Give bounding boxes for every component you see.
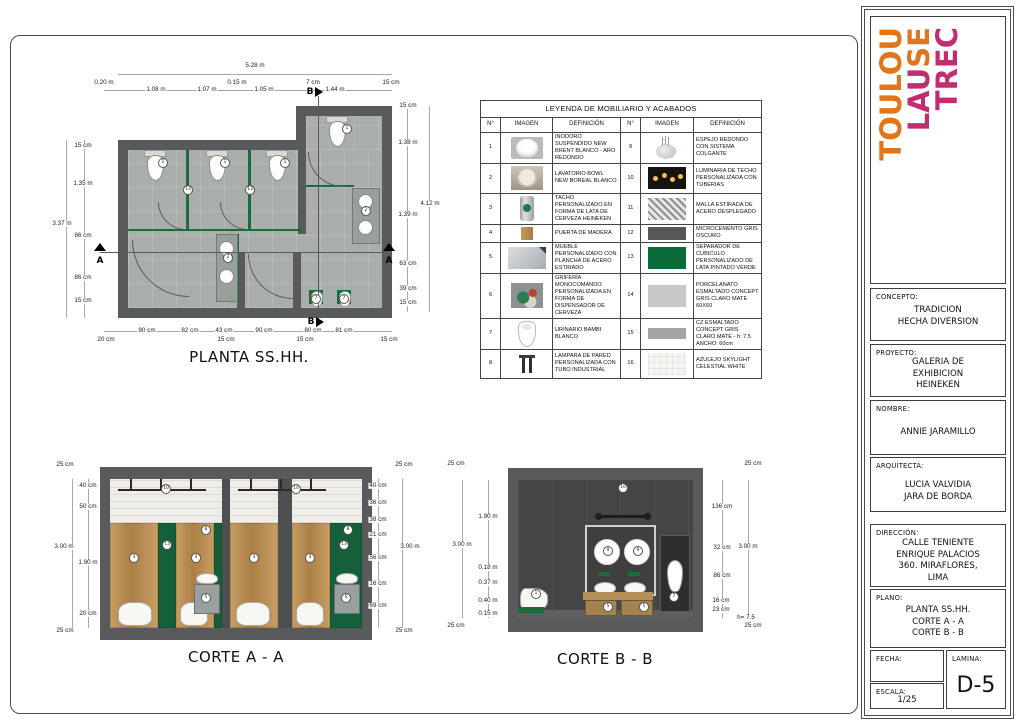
dim-label: 0.15 m (477, 611, 498, 617)
legend-def: LAVATORIO BOWL NEW BOREAL BLANCO (553, 163, 621, 193)
legend-def: INODORO SUSPENDIDO NEW BRENT BLANCO - AR… (553, 133, 621, 164)
concepto-box: CONCEPTO: TRADICION HECHA DIVERSION (870, 288, 1006, 341)
dim-label: 80 cm (303, 328, 322, 334)
concepto-label: CONCEPTO: (876, 293, 918, 301)
legend-image-cell (501, 242, 553, 273)
section-marker-b-icon (316, 317, 324, 327)
callout-lamp: 8 (343, 525, 353, 535)
legend-row: 1 INODORO SUSPENDIDO NEW BRENT BLANCO - … (481, 133, 762, 164)
dim-label: 25 cm (743, 461, 762, 467)
dim-label: 25 cm (743, 623, 762, 629)
plano-box: PLANO: PLANTA SS.HH. CORTE A - A CORTE B… (870, 589, 1006, 648)
dim-label: 90 cm (254, 328, 273, 334)
legend-num: 14 (621, 273, 641, 318)
legend-def: LAMPARA DE PARED PERSONALIZADA CON TUBO … (553, 349, 621, 378)
dividing-wall (278, 479, 292, 628)
dim-label: 15 cm (398, 103, 417, 109)
pipe-light-photo (648, 167, 686, 189)
legend-image-cell (501, 273, 553, 318)
wall-segment (118, 140, 302, 150)
callout-separator: 13 (245, 185, 255, 195)
ceiling-pipe (190, 479, 192, 491)
dim-line (402, 479, 403, 628)
legend-image-cell (501, 224, 553, 242)
callout-mirror: 9 (633, 546, 643, 556)
section-marker-a: A (386, 256, 393, 266)
sink-front (196, 573, 218, 584)
green-partition (158, 523, 176, 628)
dim-label: 3.37 m (51, 221, 72, 227)
dim-label: 56 cm (368, 555, 387, 561)
plano-label: PLANO: (876, 594, 903, 602)
lamina-box: LAMINA: D-5 (946, 650, 1006, 709)
legend-def: URINARIO BAMBI BLANCO (553, 318, 621, 349)
legend-header: N° (621, 118, 641, 133)
direccion-label: DIRECCIÓN: (876, 529, 918, 537)
arquitecta-label: ARQUITECTA: (876, 462, 924, 470)
callout-door: 4 (191, 553, 201, 563)
dim-label: 4.12 m (419, 201, 440, 207)
callout-urinal: 7 (669, 592, 679, 602)
ceiling-pipe (130, 479, 132, 491)
callout-door: 4 (129, 553, 139, 563)
gray-tile-swatch (648, 328, 686, 339)
legend-image-cell (501, 163, 553, 193)
callout-separator: 13 (339, 540, 349, 550)
round-mirror-photo (655, 135, 679, 160)
concepto-value: TRADICION HECHA DIVERSION (871, 305, 1005, 328)
dim-label: 25 cm (394, 628, 413, 634)
dim-label: 25 cm (446, 461, 465, 467)
legend-row: 2 LAVATORIO BOWL NEW BOREAL BLANCO 10 LU… (481, 163, 762, 193)
callout-toilet: 1 (220, 158, 230, 168)
nombre-value: ANNIE JARAMILLO (871, 427, 1005, 439)
dim-line (407, 106, 408, 312)
dim-label: 39 cm (398, 286, 417, 292)
sink-bowl (358, 220, 373, 235)
legend-row: 5 MUEBLE PERSONALIZADO CON PLANCHA DE AC… (481, 242, 762, 273)
proyecto-value: GALERIA DE EXHIBICION HEINEKEN (871, 357, 1005, 392)
legend-row: 4 PUERTA DE MADERA 12 MICROCEMENTO GRIS … (481, 224, 762, 242)
dim-label: 21 cm (368, 532, 387, 538)
ceiling-pipe (310, 479, 312, 491)
dim-label: 82 cm (180, 328, 199, 334)
legend-num: 13 (621, 242, 641, 273)
legend-def: MUEBLE PERSONALIZADO CON PLANCHA DE ACER… (553, 242, 621, 273)
dim-label: 1.90 m (477, 514, 498, 520)
direccion-value: CALLE TENIENTE ENRIQUE PALACIOS 360. MIR… (871, 538, 1005, 584)
dim-line (84, 140, 85, 318)
dim-label: 5.28 m (244, 63, 265, 69)
legend-table: LEYENDA DE MOBILIARIO Y ACABADOS N° IMAG… (480, 100, 762, 379)
dim-label: 86 cm (73, 233, 92, 239)
dim-line (72, 479, 73, 628)
legend-def: SEPARADOR DE CUBICULO PERSONALIZADO DE L… (694, 242, 762, 273)
callout-cabinet: 5 (201, 593, 211, 603)
section-marker-a: A (97, 256, 104, 266)
dim-label: 136 cm (711, 504, 734, 510)
legend-image-cell (641, 224, 694, 242)
legend-header: IMAGEN (501, 118, 553, 133)
legend-num: 2 (481, 163, 501, 193)
escala-value: 1/25 (871, 695, 943, 707)
lamp-bulb (644, 513, 651, 520)
wall-segment (296, 106, 392, 116)
legend-title: LEYENDA DE MOBILIARIO Y ACABADOS (481, 101, 762, 118)
legend-row: 6 GRIFERÍA MONOCOMANDO PERSONALIZADA EN … (481, 273, 762, 318)
white-tile-swatch (648, 353, 686, 375)
logo-word-trec: TREC (933, 27, 963, 110)
wall-segment (293, 253, 301, 308)
fecha-label: FECHA: (876, 655, 902, 663)
callout-cabinet: 5 (603, 602, 613, 612)
dim-line (66, 140, 67, 318)
escala-box: ESCALA: 1/25 (870, 683, 944, 709)
urinal-front (667, 560, 683, 592)
legend-def: MICROCEMENTO GRIS OSCURO (694, 224, 762, 242)
green-base (518, 607, 544, 613)
legend-num: 8 (481, 349, 501, 378)
steel-mesh-swatch (648, 198, 686, 220)
callout-sink: 2 (223, 253, 233, 263)
legend-image-cell (641, 193, 694, 224)
dim-label: 69 cm (368, 603, 387, 609)
dim-label: 40 cm (368, 483, 387, 489)
callout-urinal: 7 (339, 294, 349, 304)
section-marker-b: B (307, 87, 314, 97)
callout-door: 4 (305, 553, 315, 563)
dim-label: 1.39 m (397, 212, 418, 218)
dim-label: 15 cm (398, 300, 417, 306)
dim-label: h= 7.5 (736, 615, 756, 621)
callout-ceiling-light: 10 (618, 483, 628, 493)
nombre-label: NOMBRE: (876, 405, 910, 413)
callout-toilet: 1 (531, 589, 541, 599)
legend-num: 11 (621, 193, 641, 224)
dim-label: 0.15 m (226, 80, 247, 86)
dim-label: 38 cm (368, 517, 387, 523)
dim-label: 36 cm (368, 500, 387, 506)
drawing-sheet: TOULOU LAUSE TREC CONCEPTO: TRADICION HE… (0, 0, 1024, 723)
legend-header: IMAGEN (641, 118, 694, 133)
wood-counter (583, 592, 653, 600)
dim-label: 15 cm (216, 337, 235, 343)
dim-label: 15 cm (73, 298, 92, 304)
dim-label: 1.44 m (324, 87, 345, 93)
callout-separator: 13 (183, 185, 193, 195)
dim-label: 23 cm (711, 607, 730, 613)
legend-def: ESPEJO REDONDO CON SISTEMA COLGANTE (694, 133, 762, 164)
plano-value: PLANTA SS.HH. CORTE A - A CORTE B - B (871, 605, 1005, 640)
stall-front-wall (128, 229, 302, 231)
section-marker-a-icon (94, 243, 106, 251)
dim-label: 15 cm (73, 143, 92, 149)
legend-header: N° (481, 118, 501, 133)
dim-label: 3.00 m (53, 544, 74, 550)
lamina-value: D-5 (947, 671, 1005, 701)
legend-def: MALLA ESTIRADA DE ACERO DESPLEGADO (694, 193, 762, 224)
dim-label: 86 cm (73, 275, 92, 281)
dim-label: 20 cm (96, 337, 115, 343)
callout-ceiling-light: 10 (291, 484, 301, 494)
microcement-swatch (648, 227, 686, 240)
dim-label: 16 cm (368, 581, 387, 587)
bowl-sink-photo (511, 166, 543, 190)
legend-header: DEFINICIÓN (694, 118, 762, 133)
legend-num: 1 (481, 133, 501, 164)
legend-num: 10 (621, 163, 641, 193)
legend-image-cell (641, 349, 694, 378)
sink-bowl (219, 269, 234, 284)
beer-tap-photo (511, 283, 543, 308)
proyecto-label: PROYECTO: (876, 349, 916, 357)
dim-label: 3.00 m (399, 544, 420, 550)
legend-def: TACHO PERSONALIZADO EN FORMA DE LATA DE … (553, 193, 621, 224)
dim-label: 81 cm (334, 328, 353, 334)
dim-label: 15 cm (381, 80, 400, 86)
callout-door: 4 (249, 553, 259, 563)
toilet-front (296, 602, 324, 626)
legend-image-cell (641, 133, 694, 164)
logo-box: TOULOU LAUSE TREC (870, 16, 1006, 284)
dim-label: 86 cm (712, 573, 731, 579)
dim-label: 3.00 m (737, 544, 758, 550)
callout-cabinet: 5 (341, 593, 351, 603)
wall-segment (118, 308, 392, 318)
callout-mirror: 9 (603, 546, 613, 556)
legend-num: 6 (481, 273, 501, 318)
porcelain-swatch (648, 285, 686, 307)
dim-label: 90 cm (137, 328, 156, 334)
dim-label: 40 cm (78, 483, 97, 489)
dim-label: 1.38 m (397, 140, 418, 146)
dim-label: 32 cm (712, 545, 731, 551)
legend-num: 16 (621, 349, 641, 378)
legend-def: AZULEJO SKYLIGHT CELESTIAL WHITE (694, 349, 762, 378)
callout-urinal: 7 (311, 294, 321, 304)
section-line-a (100, 252, 390, 253)
legend-row: 8 LAMPARA DE PARED PERSONALIZADA CON TUB… (481, 349, 762, 378)
dim-label: 25 cm (55, 462, 74, 468)
legend-image-cell (501, 318, 553, 349)
dim-label: 25 cm (446, 623, 465, 629)
green-accent (628, 572, 640, 576)
dim-line (118, 74, 392, 75)
nombre-box: NOMBRE: ANNIE JARAMILLO (870, 400, 1006, 455)
callout-lamp: 8 (201, 525, 211, 535)
legend-num: 12 (621, 224, 641, 242)
legend-num: 4 (481, 224, 501, 242)
dim-line (462, 480, 463, 618)
section-marker-b-icon (315, 87, 323, 97)
ceiling-pipe (280, 479, 282, 491)
wall-segment (298, 146, 306, 234)
dim-label: 15 cm (379, 337, 398, 343)
dim-label: 63 cm (398, 261, 417, 267)
toilet-front (236, 602, 270, 626)
dim-label: 0.37 m (477, 580, 498, 586)
green-partition (306, 185, 354, 187)
lamina-label: LAMINA: (952, 655, 982, 663)
legend-def: LUMINARIA DE TECHO PERSONALIZADA CON TUB… (694, 163, 762, 193)
legend-def: PORCELANATO ESMALTADO CONCEPT GRIS CLARO… (694, 273, 762, 318)
wall-lamp-photo (517, 352, 537, 376)
callout-toilet: 1 (158, 158, 168, 168)
legend-num: 3 (481, 193, 501, 224)
dim-line (88, 479, 89, 628)
legend-image-cell (641, 242, 694, 273)
fecha-box: FECHA: (870, 650, 944, 682)
section-marker-a-icon (383, 243, 395, 251)
callout-ceiling-light: 10 (161, 484, 171, 494)
dividing-wall (222, 479, 230, 628)
beer-can-trash-photo (520, 196, 534, 221)
toilet-photo (511, 137, 543, 159)
legend-row: 3 TACHO PERSONALIZADO EN FORMA DE LATA D… (481, 193, 762, 224)
lamp-bulb (595, 513, 602, 520)
urinal-photo (518, 321, 536, 347)
dim-label: 20 cm (78, 611, 97, 617)
legend-num: 9 (621, 133, 641, 164)
plan-title: PLANTA SS.HH. (189, 348, 309, 366)
section-marker-b: B (308, 317, 315, 327)
section-a-title: CORTE A - A (188, 648, 284, 666)
legend-num: 15 (621, 318, 641, 349)
dim-label: 50 cm (78, 504, 97, 510)
dim-line (429, 106, 430, 312)
section-b-title: CORTE B - B (557, 650, 653, 668)
dim-label: 1.35 m (72, 181, 93, 187)
dim-label: 16 cm (711, 598, 730, 604)
legend-num: 5 (481, 242, 501, 273)
callout-separator: 13 (162, 540, 172, 550)
proyecto-box: PROYECTO: GALERIA DE EXHIBICION HEINEKEN (870, 344, 1006, 397)
dim-label: 15 cm (295, 337, 314, 343)
dim-label: 3.00 m (451, 542, 472, 548)
callout-sink: 2 (361, 206, 371, 216)
ceiling-pipe (250, 479, 252, 491)
legend-def: CZ ESMALTADO CONCEPT GRIS CLARO MATE - h… (694, 318, 762, 349)
callout-cabinet: 5 (639, 602, 649, 612)
dim-label: 0.20 m (93, 80, 114, 86)
dim-label: 1.90 m (77, 560, 98, 566)
legend-image-cell (641, 273, 694, 318)
wall-segment (118, 140, 128, 318)
legend-image-cell (501, 133, 553, 164)
legend-def: PUERTA DE MADERA (553, 224, 621, 242)
steel-cabinet-photo (508, 247, 546, 269)
dim-label: 1.08 m (145, 87, 166, 93)
wood-door-photo (521, 227, 533, 240)
dim-label: 1.05 m (253, 87, 274, 93)
dim-label: 7 cm (305, 80, 321, 86)
sink-front (336, 573, 358, 584)
dim-label: 25 cm (55, 628, 74, 634)
pipe-lamp (598, 515, 648, 518)
legend-image-cell (501, 349, 553, 378)
arquitecta-value: LUCIA VALVIDIA JARA DE BORDA (871, 480, 1005, 503)
legend-header: DEFINICIÓN (553, 118, 621, 133)
legend-def: GRIFERÍA MONOCOMANDO PERSONALIZADA EN FO… (553, 273, 621, 318)
wall-segment (296, 106, 306, 146)
arquitecta-box: ARQUITECTA: LUCIA VALVIDIA JARA DE BORDA (870, 457, 1006, 512)
legend-num: 7 (481, 318, 501, 349)
toilet-front (118, 602, 152, 626)
dim-label: 25 cm (394, 462, 413, 468)
callout-toilet: 1 (280, 158, 290, 168)
legend-image-cell (501, 193, 553, 224)
legend-row: 7 URINARIO BAMBI BLANCO 15 CZ ESMALTADO … (481, 318, 762, 349)
green-accent (598, 572, 610, 576)
callout-toilet: 1 (342, 124, 352, 134)
dim-label: 0.18 m (477, 565, 498, 571)
section-line-b (318, 96, 319, 322)
legend-image-cell (641, 163, 694, 193)
dim-label: 1.07 m (196, 87, 217, 93)
legend-image-cell (641, 318, 694, 349)
green-panel-swatch (648, 247, 686, 269)
direccion-box: DIRECCIÓN: CALLE TENIENTE ENRIQUE PALACI… (870, 524, 1006, 587)
wall-segment (382, 106, 392, 312)
dim-label: 43 cm (214, 328, 233, 334)
dim-label: 0.40 m (477, 598, 498, 604)
